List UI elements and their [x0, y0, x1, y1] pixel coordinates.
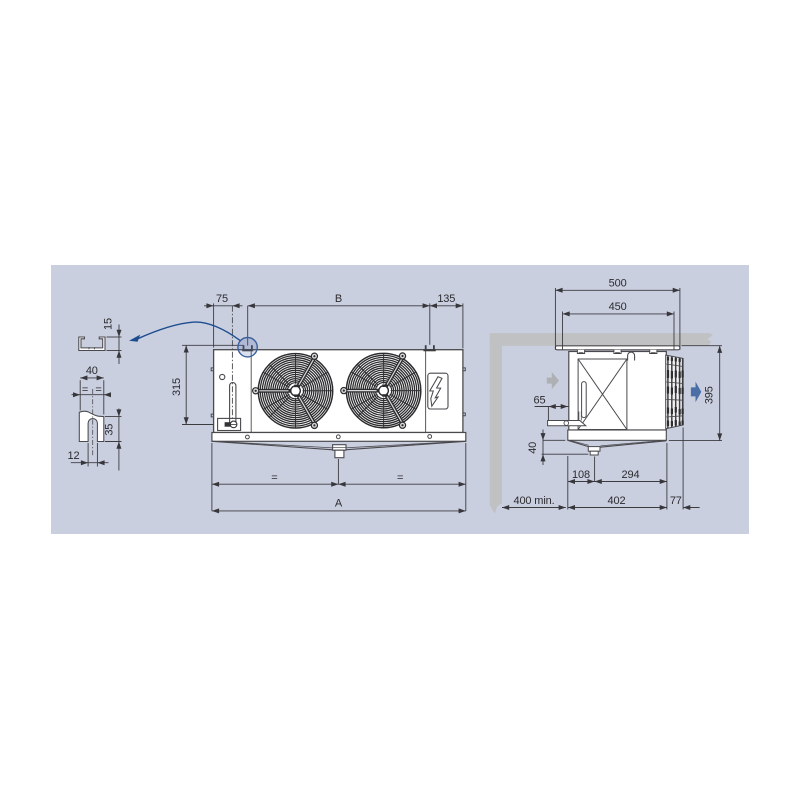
svg-text:108: 108: [572, 469, 590, 481]
svg-text:40: 40: [527, 442, 539, 454]
svg-text:15: 15: [103, 318, 115, 330]
svg-text:35: 35: [103, 424, 115, 436]
svg-text:=: =: [95, 384, 101, 396]
svg-text:315: 315: [171, 378, 183, 396]
svg-text:=: =: [271, 472, 277, 484]
svg-text:400 min.: 400 min.: [514, 495, 555, 507]
svg-text:A: A: [335, 498, 343, 510]
svg-text:B: B: [335, 293, 342, 305]
svg-text:40: 40: [86, 365, 98, 377]
svg-text:294: 294: [622, 469, 640, 481]
svg-text:12: 12: [68, 450, 80, 462]
svg-text:75: 75: [216, 293, 228, 305]
svg-text:395: 395: [704, 386, 716, 404]
svg-text:=: =: [82, 384, 88, 396]
svg-text:65: 65: [534, 394, 546, 406]
svg-text:402: 402: [608, 495, 626, 507]
svg-text:500: 500: [609, 278, 627, 290]
svg-text:=: =: [397, 472, 403, 484]
svg-text:77: 77: [670, 495, 682, 507]
svg-text:135: 135: [437, 293, 455, 305]
svg-text:450: 450: [609, 301, 627, 313]
